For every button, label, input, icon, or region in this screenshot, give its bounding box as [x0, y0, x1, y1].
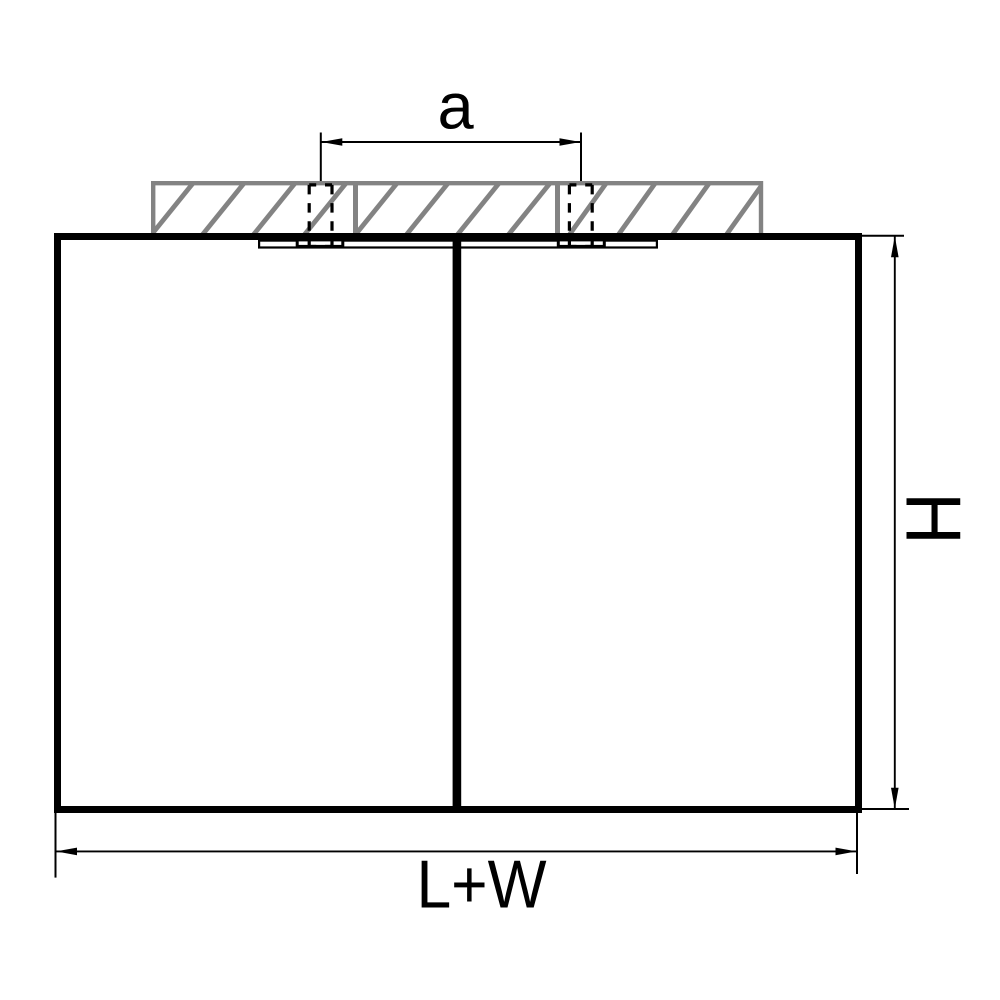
svg-text:L+W: L+W: [416, 846, 546, 922]
svg-text:H: H: [890, 492, 977, 544]
svg-text:a: a: [438, 70, 475, 143]
